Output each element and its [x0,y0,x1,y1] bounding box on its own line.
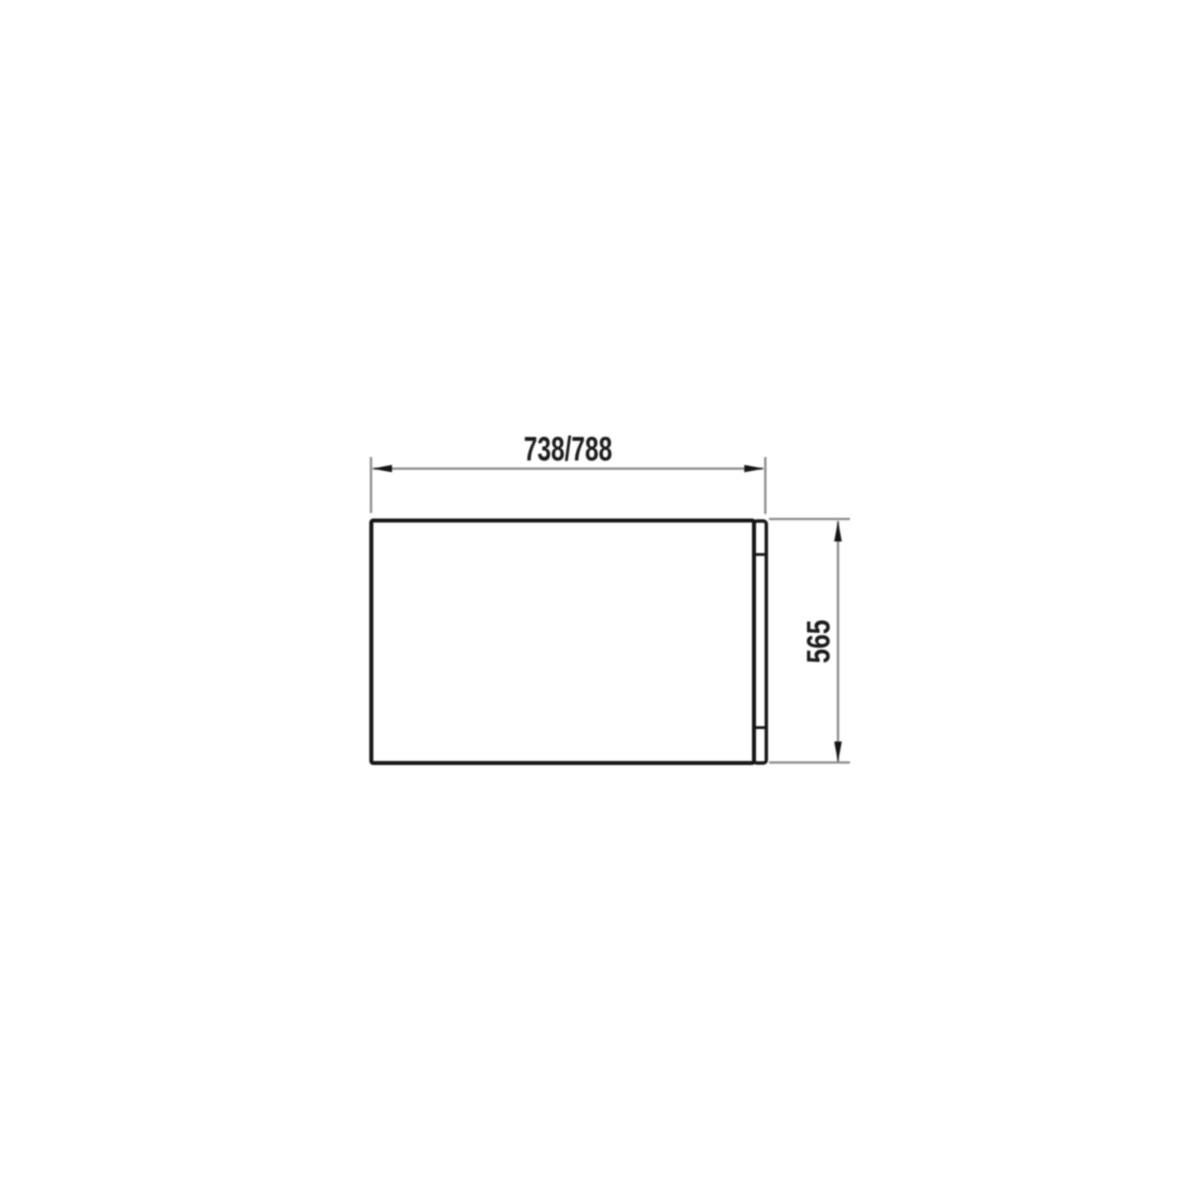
svg-text:565: 565 [802,620,837,664]
svg-text:738/788: 738/788 [524,431,612,469]
